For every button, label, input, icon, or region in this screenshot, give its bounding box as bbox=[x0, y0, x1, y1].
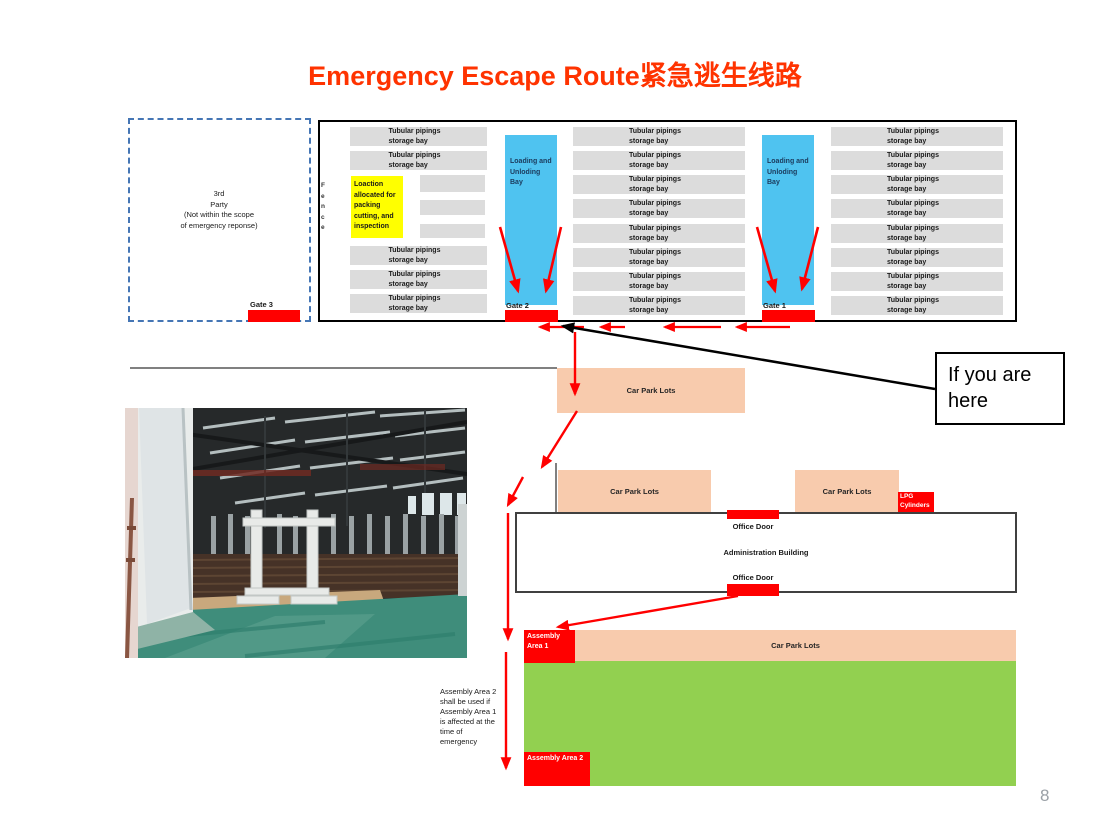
fence-label: F e n c e bbox=[321, 181, 325, 234]
storage-bay: Tubular pipings storage bay bbox=[350, 294, 487, 313]
storage-bay: Tubular pipings storage bay bbox=[831, 248, 1003, 267]
assembly-area-1: Assembly Area 1 bbox=[524, 630, 575, 663]
car-park-3: Car Park Lots bbox=[795, 470, 899, 512]
storage-bay: Tubular pipings storage bay bbox=[573, 224, 745, 243]
car-park-2: Car Park Lots bbox=[558, 470, 711, 512]
blank-bay bbox=[420, 175, 485, 192]
storage-bay: Tubular pipings storage bay bbox=[573, 199, 745, 218]
packing-area-note: Loaction allocated for packing cutting, … bbox=[351, 176, 403, 238]
storage-bay: Tubular pipings storage bay bbox=[831, 296, 1003, 315]
blank-bay bbox=[420, 200, 485, 215]
gate3-label: Gate 3 bbox=[250, 300, 273, 309]
storage-bay: Tubular pipings storage bay bbox=[573, 272, 745, 291]
site-boundary-line bbox=[130, 367, 557, 369]
office-door-bottom-label: Office Door bbox=[713, 573, 793, 582]
loading-bay-gate1: Loading and Unloding Bay bbox=[762, 135, 814, 305]
storage-bay: Tubular pipings storage bay bbox=[350, 151, 487, 170]
storage-bay: Tubular pipings storage bay bbox=[573, 248, 745, 267]
storage-bay: Tubular pipings storage bay bbox=[831, 224, 1003, 243]
storage-bay: Tubular pipings storage bay bbox=[831, 272, 1003, 291]
office-door-top-label: Office Door bbox=[713, 522, 793, 531]
storage-bay: Tubular pipings storage bay bbox=[573, 151, 745, 170]
site-boundary-line bbox=[555, 463, 557, 512]
gate3-marker bbox=[248, 310, 300, 322]
page-number: 8 bbox=[1040, 786, 1049, 806]
you-are-here-callout: If you are here bbox=[935, 352, 1065, 425]
gate1-marker bbox=[762, 310, 815, 322]
lpg-cylinders-marker: LPG Cylinders bbox=[898, 492, 934, 513]
gate1-label: Gate 1 bbox=[763, 301, 786, 310]
blank-bay bbox=[420, 224, 485, 238]
storage-bay: Tubular pipings storage bay bbox=[831, 175, 1003, 194]
storage-bay: Tubular pipings storage bay bbox=[573, 296, 745, 315]
storage-bay: Tubular pipings storage bay bbox=[350, 246, 487, 265]
warehouse-photo bbox=[125, 408, 467, 658]
page-title: Emergency Escape Route紧急逃生线路 bbox=[0, 54, 1110, 93]
admin-building-label: Administration Building bbox=[515, 548, 1017, 557]
storage-bay: Tubular pipings storage bay bbox=[831, 127, 1003, 146]
storage-bay: Tubular pipings storage bay bbox=[573, 127, 745, 146]
storage-bay: Tubular pipings storage bay bbox=[350, 270, 487, 289]
assembly-note: Assembly Area 2 shall be used if Assembl… bbox=[440, 687, 508, 747]
assembly-area-2: Assembly Area 2 bbox=[524, 752, 590, 786]
storage-bay: Tubular pipings storage bay bbox=[831, 151, 1003, 170]
warehouse-photo-graphic bbox=[125, 408, 467, 658]
storage-bay: Tubular pipings storage bay bbox=[350, 127, 487, 146]
gate2-label: Gate 2 bbox=[506, 301, 529, 310]
slide: Emergency Escape Route紧急逃生线路 3rd Party (… bbox=[0, 0, 1120, 840]
storage-bay: Tubular pipings storage bay bbox=[831, 199, 1003, 218]
gate2-marker bbox=[505, 310, 558, 322]
loading-bay-gate2: Loading and Unloding Bay bbox=[505, 135, 557, 305]
storage-bay: Tubular pipings storage bay bbox=[573, 175, 745, 194]
car-park-4: Car Park Lots bbox=[575, 630, 1016, 661]
field-area bbox=[524, 661, 1016, 786]
office-door-bottom-marker bbox=[727, 584, 779, 596]
car-park-1: Car Park Lots bbox=[557, 368, 745, 413]
office-door-top-marker bbox=[727, 510, 779, 519]
third-party-note: 3rd Party (Not within the scope of emerg… bbox=[133, 189, 305, 231]
